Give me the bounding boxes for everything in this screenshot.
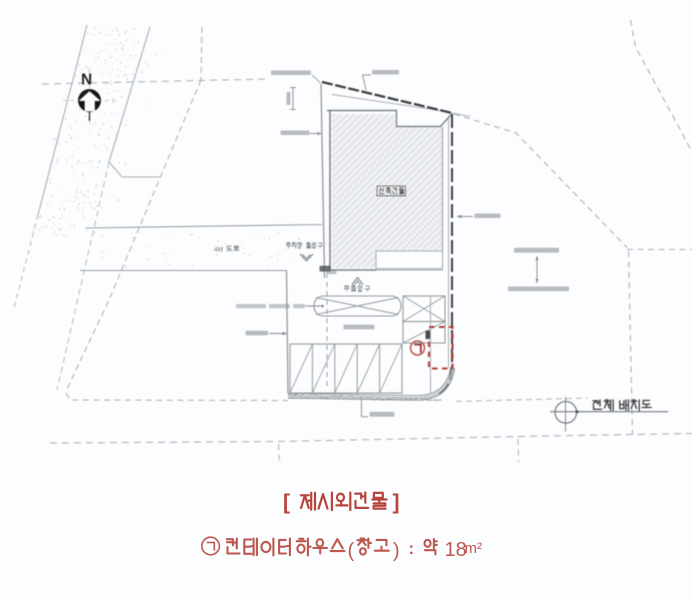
svg-text:(: ( bbox=[348, 540, 355, 562]
svg-text:4M: 4M bbox=[214, 247, 223, 254]
svg-text:]: ] bbox=[393, 491, 400, 514]
svg-text:m²: m² bbox=[465, 540, 483, 557]
svg-text:N: N bbox=[81, 72, 92, 89]
svg-text::: : bbox=[409, 539, 415, 558]
svg-text:[: [ bbox=[283, 491, 290, 514]
svg-text:): ) bbox=[393, 540, 400, 562]
svg-text:18: 18 bbox=[445, 539, 467, 561]
